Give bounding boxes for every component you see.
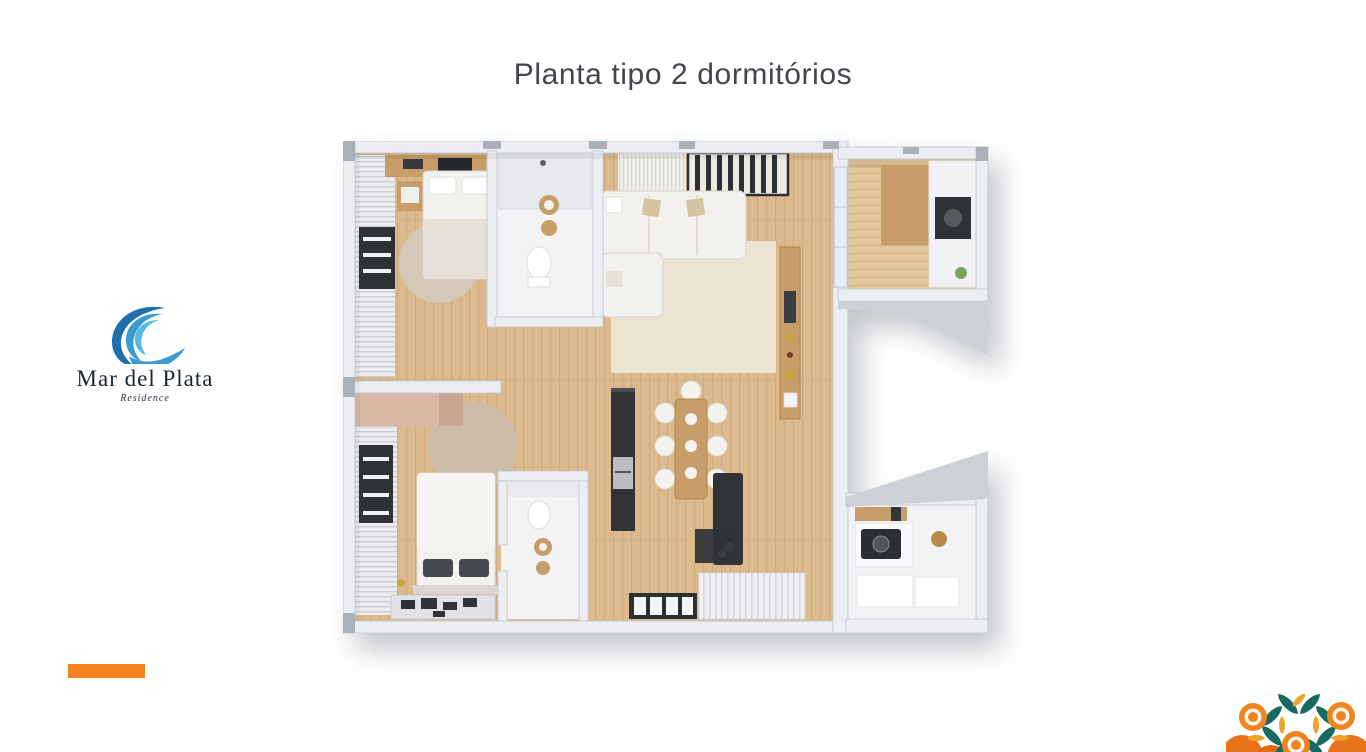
floor-plan bbox=[343, 141, 993, 642]
presentation-slide: Planta tipo 2 dormitórios Mar del Plata … bbox=[0, 0, 1366, 752]
floor-plan-render bbox=[343, 141, 993, 637]
page-title: Planta tipo 2 dormitórios bbox=[0, 58, 1366, 92]
bedroom-2 bbox=[355, 393, 518, 619]
brand-logo: Mar del Plata Residence bbox=[55, 300, 235, 404]
circle-leaf-pattern-icon bbox=[1226, 694, 1366, 752]
wall-slabs bbox=[838, 301, 988, 507]
corner-decoration bbox=[1226, 694, 1366, 752]
glass-door bbox=[834, 167, 847, 287]
kitchen bbox=[611, 388, 635, 531]
accent-bar bbox=[68, 664, 145, 678]
brand-subtitle: Residence bbox=[55, 393, 235, 404]
brand-name: Mar del Plata bbox=[55, 366, 235, 392]
wave-icon bbox=[99, 300, 191, 364]
